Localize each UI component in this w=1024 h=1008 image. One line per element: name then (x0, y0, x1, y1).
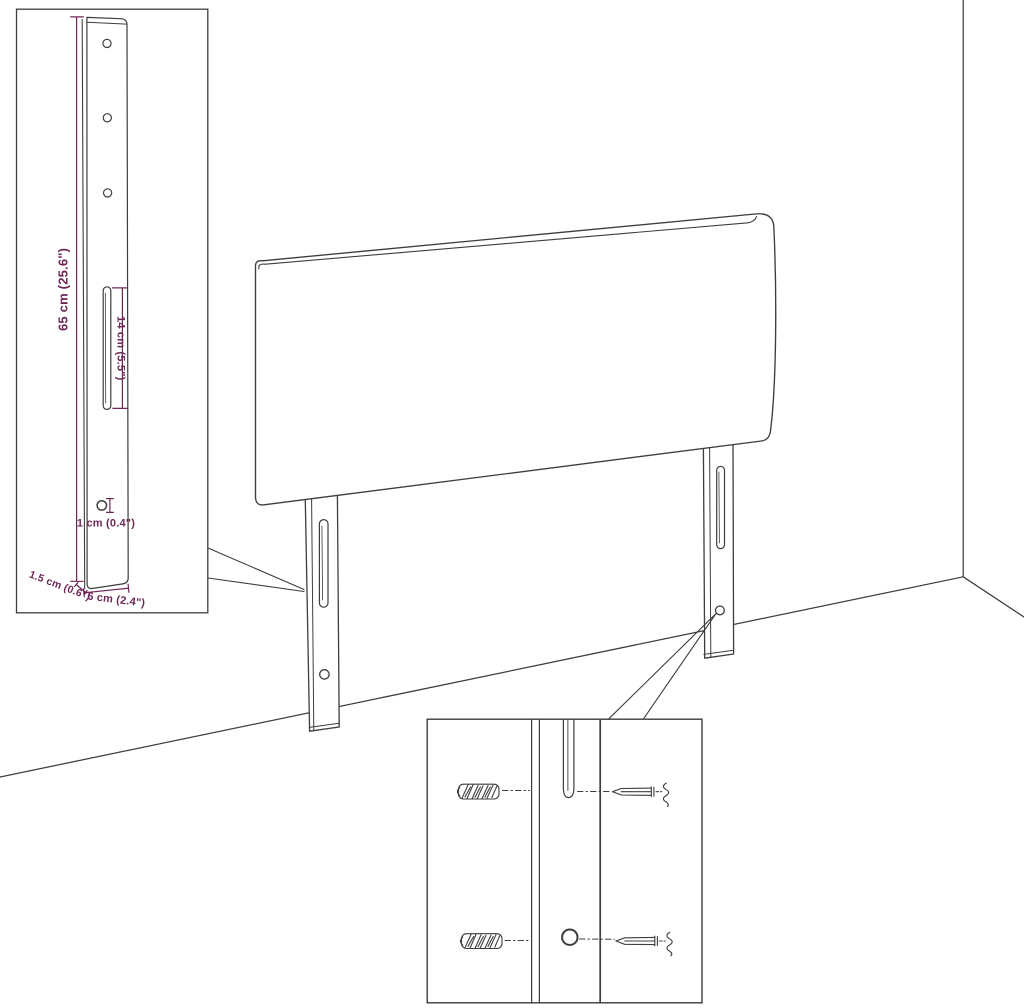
dimension-label-hole-diameter: 1 cm (0.4") (77, 518, 135, 530)
floor-line-right (963, 577, 1024, 617)
leg-detail-callout-lines (208, 548, 304, 592)
left-mounting-leg (305, 495, 339, 731)
hardware-detail-inset (427, 719, 702, 1003)
product-diagram: 65 cm (25.6") 14 cm (5.5") 1 cm (0.4") 1… (0, 0, 1024, 1008)
leg-dimension-inset: 65 cm (25.6") 14 cm (5.5") 1 cm (0.4") 1… (17, 9, 208, 613)
leg-side-view (82, 17, 128, 588)
hardware-callout-lines (608, 614, 716, 720)
dimension-label-leg-height: 65 cm (25.6") (56, 248, 71, 331)
diagram-canvas: 65 cm (25.6") 14 cm (5.5") 1 cm (0.4") 1… (0, 0, 1024, 1008)
headboard-panel (255, 214, 775, 505)
dimension-label-slot-length: 14 cm (5.5") (115, 316, 127, 381)
